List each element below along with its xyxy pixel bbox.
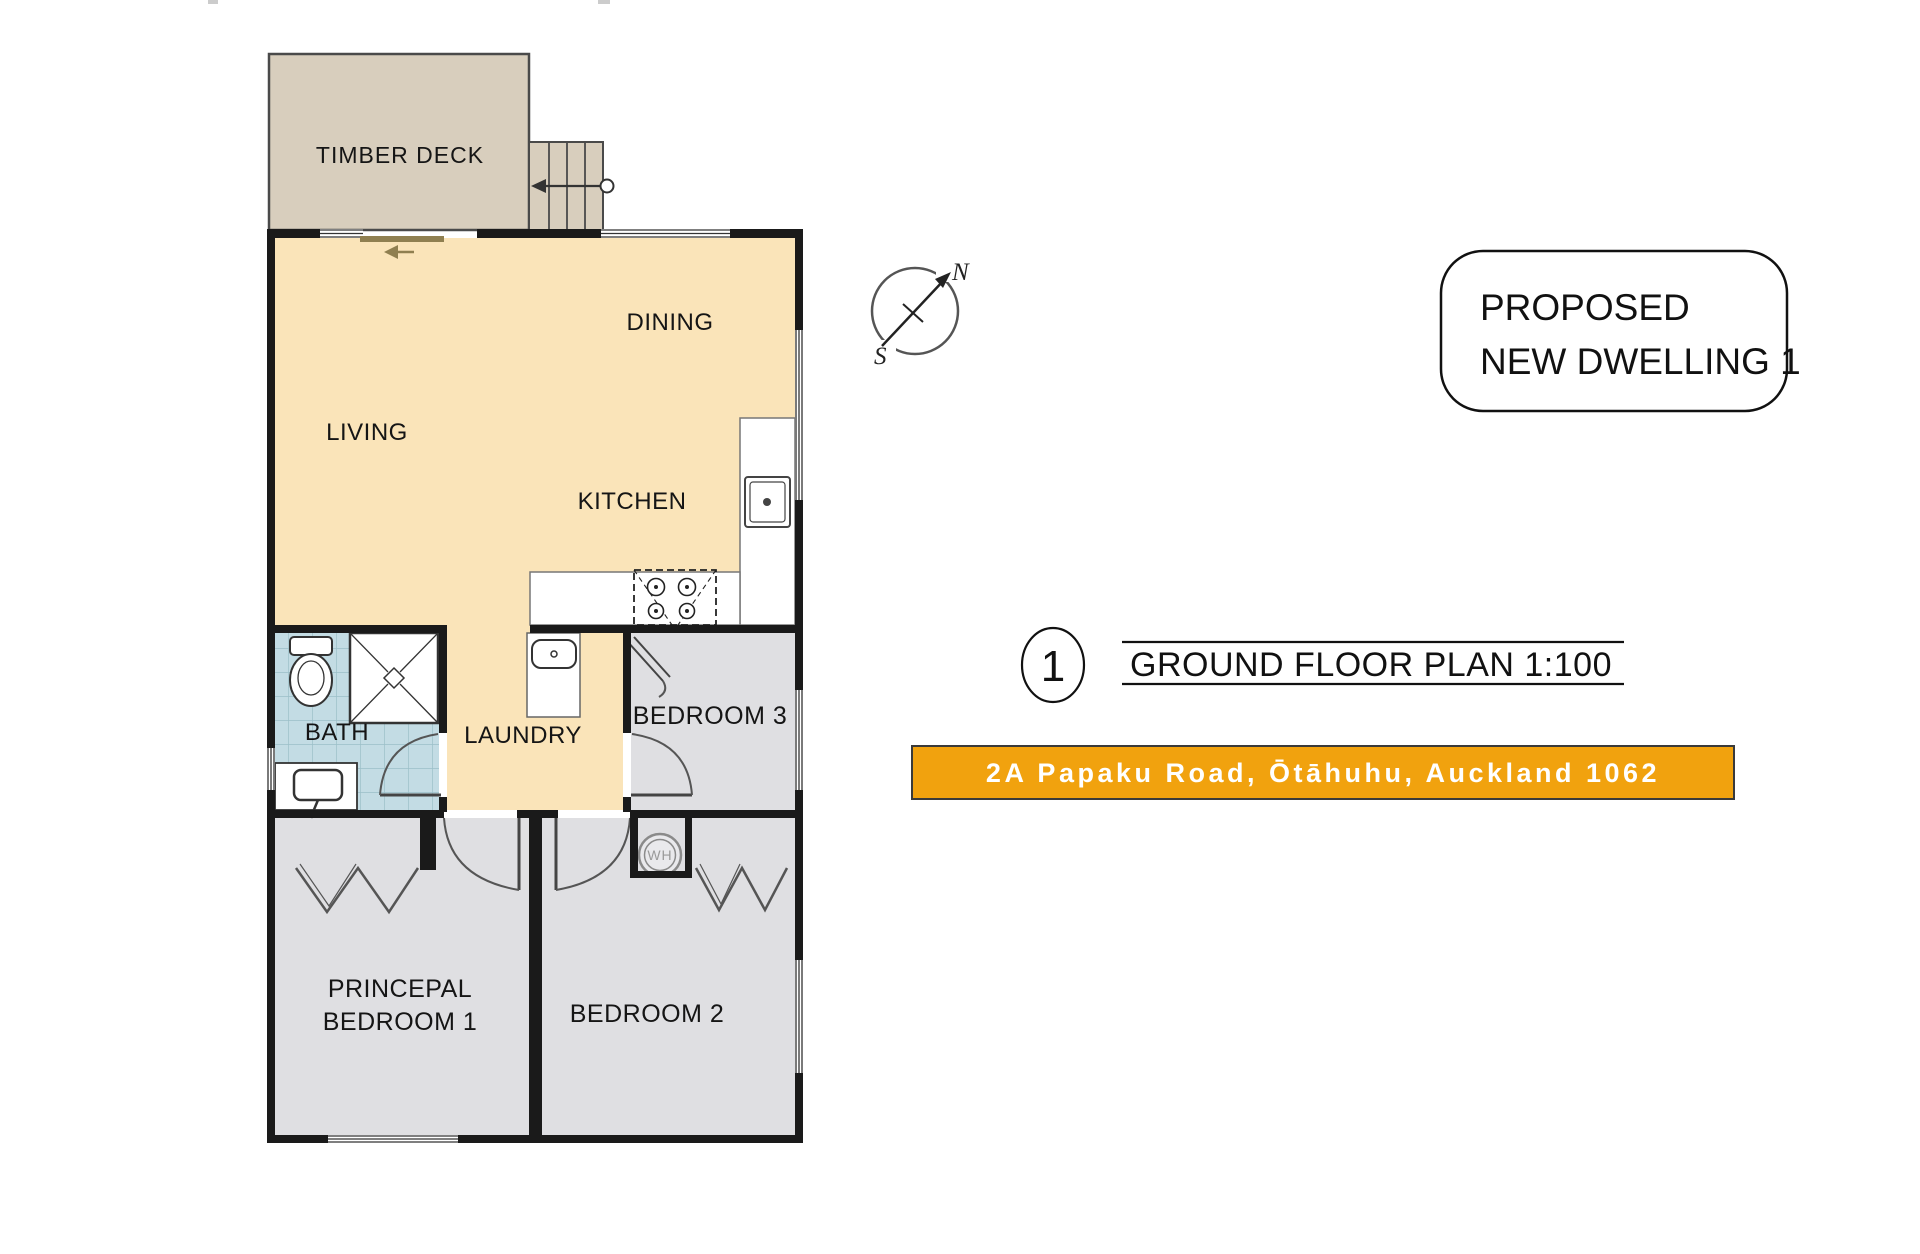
room-label-bath: BATH	[305, 719, 369, 746]
room-label-principal-line2: BEDROOM 1	[323, 1008, 478, 1036]
window-bath-west	[267, 748, 275, 790]
window-bedroom3-east	[795, 690, 803, 790]
room-label-laundry: LAUNDRY	[464, 722, 582, 749]
title-box-line2: NEW DWELLING 1	[1480, 341, 1801, 382]
water-heater-label: WH	[647, 847, 672, 863]
window-top-left	[320, 229, 363, 238]
plan-title: 1 GROUND FLOOR PLAN 1:100	[1022, 628, 1624, 702]
room-label-principal-line1: PRINCEPAL	[328, 975, 472, 1003]
window-top-right	[601, 229, 730, 238]
room-label-kitchen: KITCHEN	[578, 488, 687, 515]
room-label-timber-deck: TIMBER DECK	[316, 142, 484, 168]
floor-plan-drawing: TIMBER DECK	[0, 0, 1920, 1254]
floor-plan-sheet: TIMBER DECK	[0, 0, 1920, 1254]
compass-north-label: N	[951, 259, 970, 286]
room-label-bedroom3: BEDROOM 3	[633, 702, 788, 730]
scan-artifacts	[208, 0, 610, 4]
title-box: PROPOSED NEW DWELLING 1	[1441, 251, 1801, 411]
vanity	[275, 763, 357, 818]
room-label-bedroom2: BEDROOM 2	[570, 1000, 725, 1028]
window-bedroom1-south	[328, 1135, 458, 1143]
window-bedroom2-east	[795, 960, 803, 1073]
address-banner: 2A Papaku Road, Ōtāhuhu, Auckland 1062	[912, 746, 1734, 799]
window-dining-east	[795, 330, 803, 500]
water-heater: WH	[639, 834, 681, 876]
kitchen-sink	[745, 477, 790, 527]
compass-icon: N S	[868, 254, 970, 370]
laundry-tub	[527, 633, 580, 717]
room-label-dining: DINING	[627, 309, 714, 336]
plan-title-number: 1	[1041, 642, 1065, 691]
room-label-living: LIVING	[326, 419, 408, 446]
address-banner-text: 2A Papaku Road, Ōtāhuhu, Auckland 1062	[986, 758, 1660, 788]
title-box-line1: PROPOSED	[1480, 287, 1690, 328]
toilet	[290, 637, 332, 706]
plan-title-label: GROUND FLOOR PLAN 1:100	[1130, 646, 1612, 684]
shower	[350, 633, 438, 723]
timber-deck: TIMBER DECK	[269, 54, 614, 230]
compass-south-label: S	[874, 343, 887, 370]
